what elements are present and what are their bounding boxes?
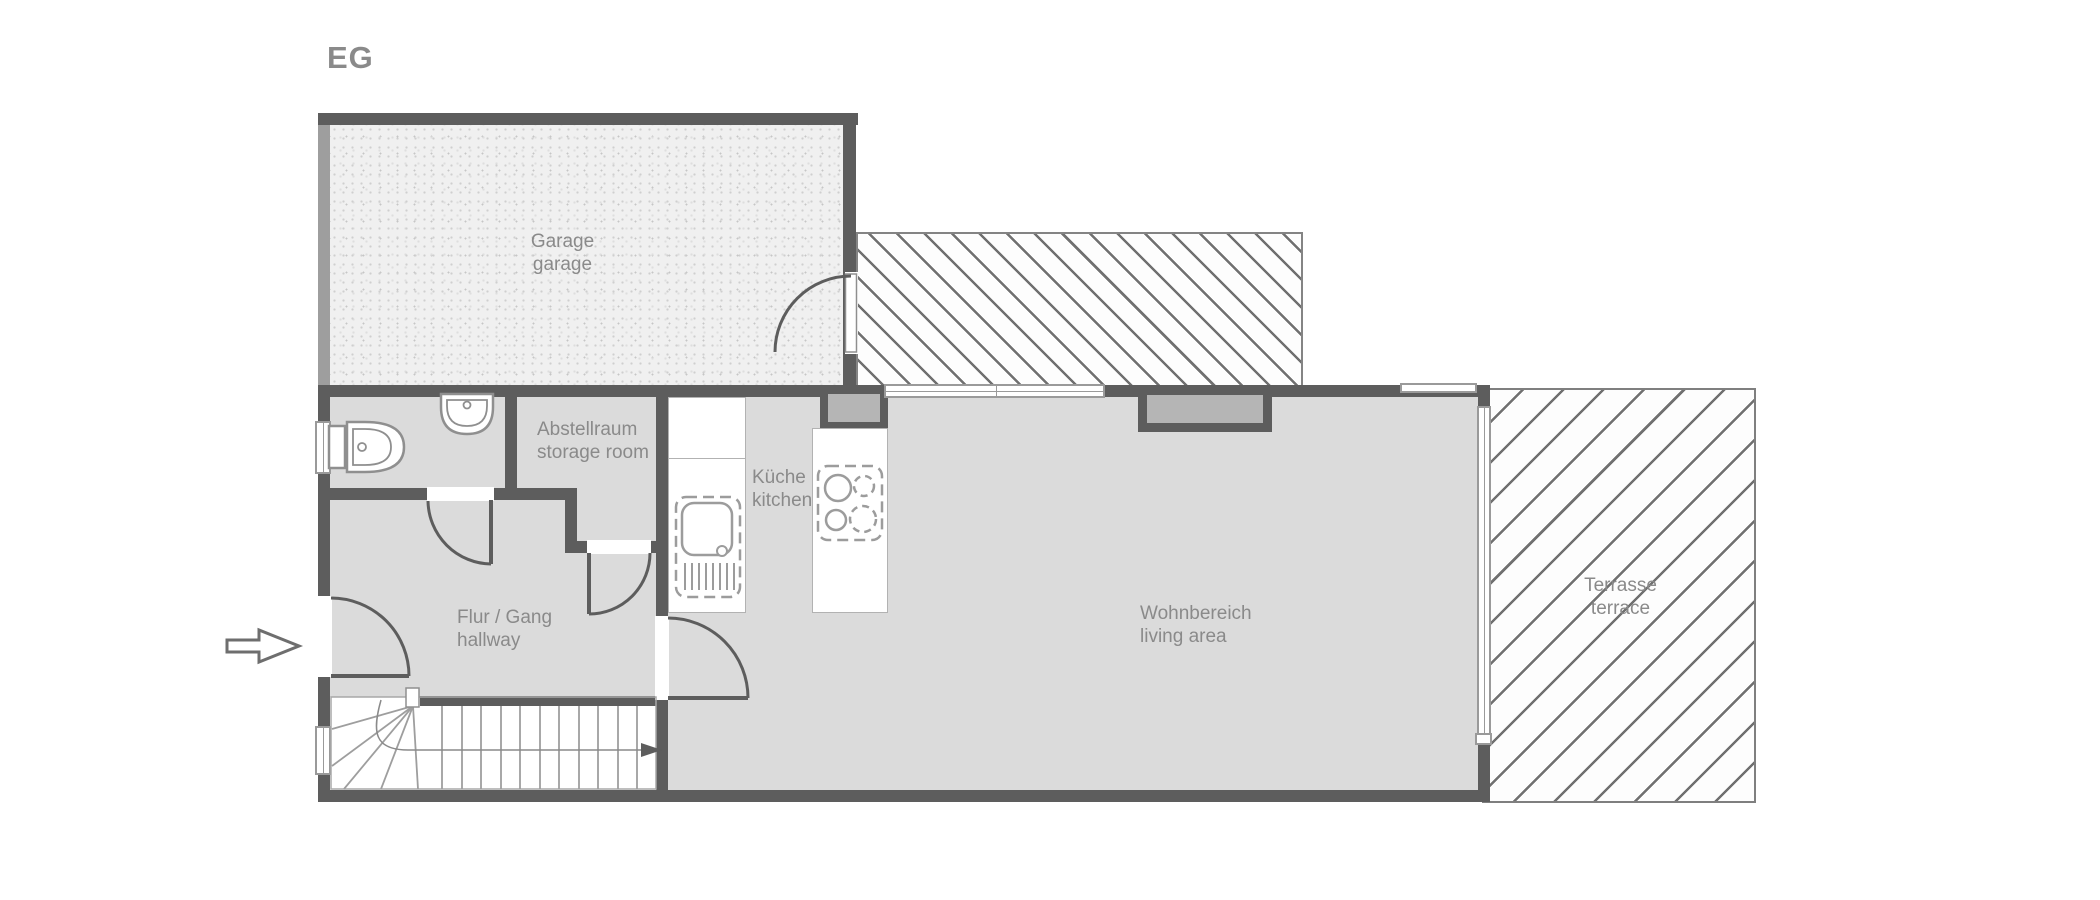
hallway-label-de: Flur / Gang xyxy=(457,607,552,628)
living-label-de: Wohnbereich xyxy=(1140,603,1252,624)
storage-label-de: Abstellraum xyxy=(537,419,637,440)
living-label-en: living area xyxy=(1140,626,1227,647)
entrance-direction-arrow xyxy=(227,630,299,662)
living-door xyxy=(668,618,748,698)
entrance-door xyxy=(331,598,409,676)
stairs-newel-post xyxy=(406,688,419,707)
hallway-label-en: hallway xyxy=(457,630,520,651)
garage-label-en: garage xyxy=(533,254,592,275)
living-label: Wohnbereich living area xyxy=(1140,602,1252,648)
washbasin-fixture xyxy=(441,394,493,434)
terrace-label-de: Terrasse xyxy=(1584,575,1657,596)
terrace-label-en: terrace xyxy=(1591,598,1650,619)
kitchen-label-en: kitchen xyxy=(752,490,812,511)
stairs-up-direction-arrow xyxy=(641,743,662,757)
plan-linework-layer xyxy=(0,0,2100,900)
cooktop-fixture xyxy=(818,466,882,540)
kitchen-label-de: Küche xyxy=(752,467,806,488)
toilet-fixture xyxy=(329,422,404,472)
terrace-label: Terrasse terrace xyxy=(1538,574,1703,620)
storage-door xyxy=(589,553,650,614)
garage-door xyxy=(775,274,857,352)
wc-door xyxy=(428,500,491,564)
garage-label: Garage garage xyxy=(480,230,645,276)
staircase xyxy=(331,697,656,789)
floor-plan-canvas: EG xyxy=(0,0,2100,900)
storage-label-en: storage room xyxy=(537,442,649,463)
kitchen-sink-fixture xyxy=(676,497,740,597)
garage-label-de: Garage xyxy=(531,231,594,252)
hallway-label: Flur / Gang hallway xyxy=(457,606,552,652)
storage-label: Abstellraum storage room xyxy=(537,418,649,464)
kitchen-label: Küche kitchen xyxy=(752,466,812,512)
